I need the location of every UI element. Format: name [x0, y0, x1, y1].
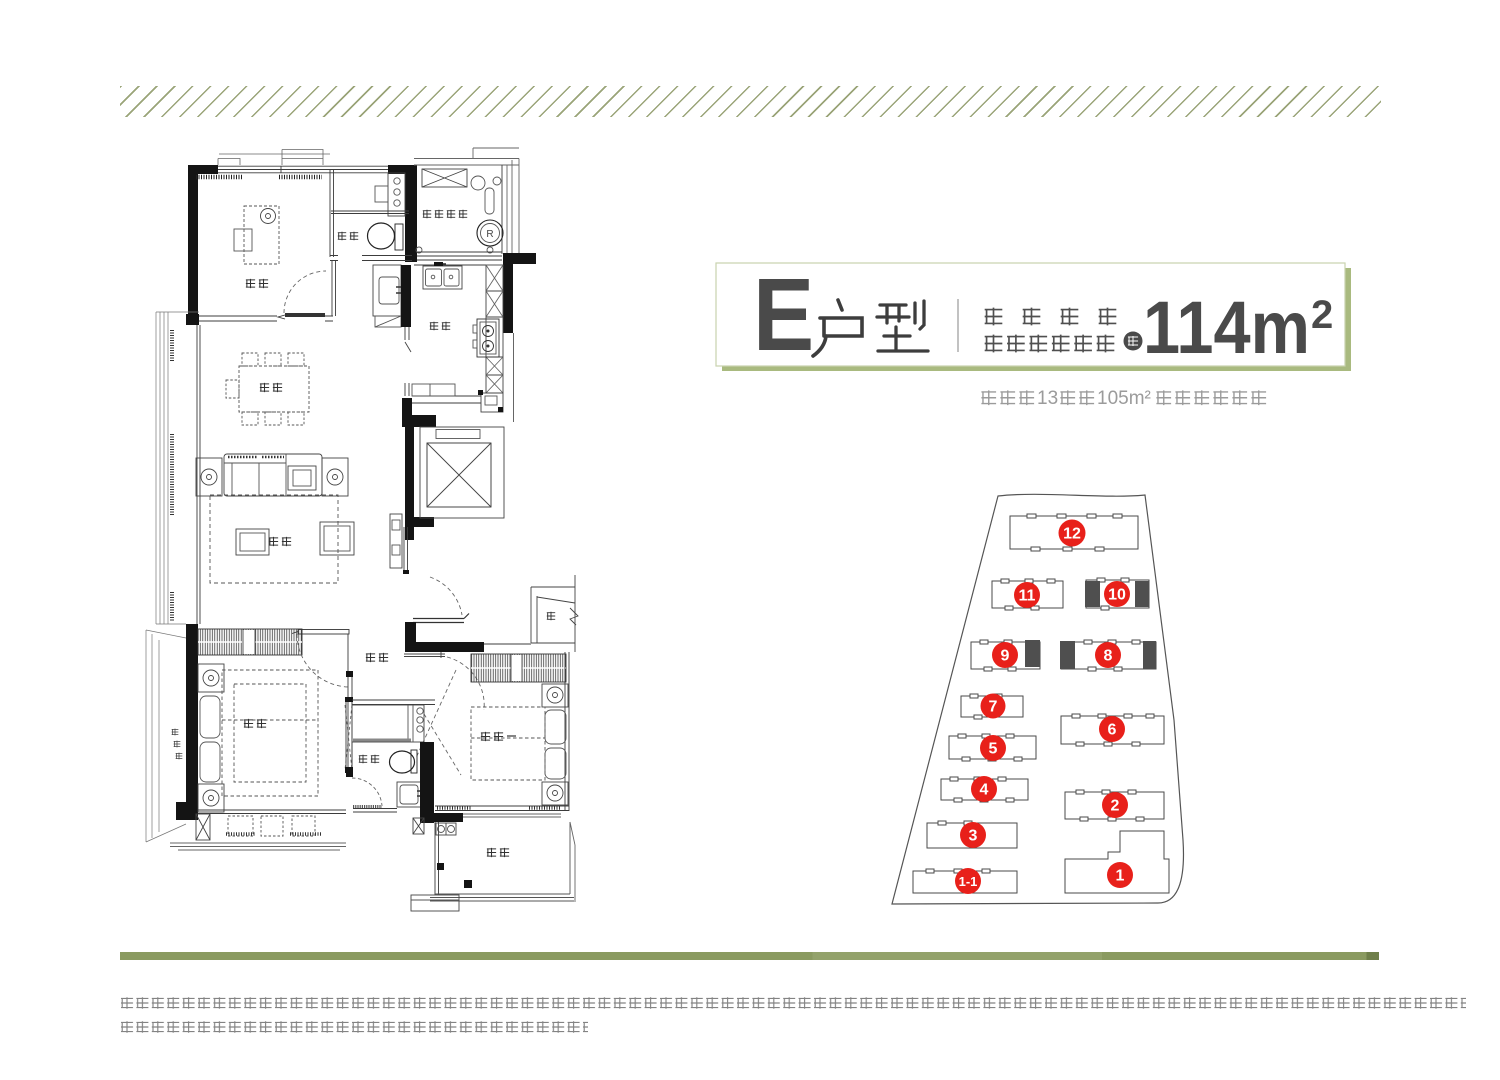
svg-text:5: 5	[989, 741, 998, 758]
svg-text:114m: 114m	[1143, 286, 1310, 369]
svg-text:8: 8	[1104, 648, 1113, 665]
svg-text:13: 13	[1037, 388, 1058, 409]
svg-text:10: 10	[1108, 587, 1126, 604]
svg-text:11: 11	[1019, 588, 1036, 605]
svg-text:9: 9	[1001, 648, 1010, 665]
svg-text:R: R	[486, 229, 493, 240]
svg-text:4: 4	[980, 782, 989, 799]
svg-text:E: E	[753, 257, 814, 372]
svg-text:2: 2	[1311, 293, 1333, 337]
svg-text:12: 12	[1063, 526, 1081, 543]
svg-text:1-1: 1-1	[959, 874, 978, 889]
svg-text:3: 3	[969, 828, 978, 845]
svg-text:7: 7	[989, 699, 998, 716]
svg-text:105m²: 105m²	[1097, 388, 1151, 409]
svg-text:2: 2	[1111, 798, 1120, 815]
svg-text:1: 1	[1116, 868, 1125, 885]
svg-text:6: 6	[1108, 722, 1117, 739]
